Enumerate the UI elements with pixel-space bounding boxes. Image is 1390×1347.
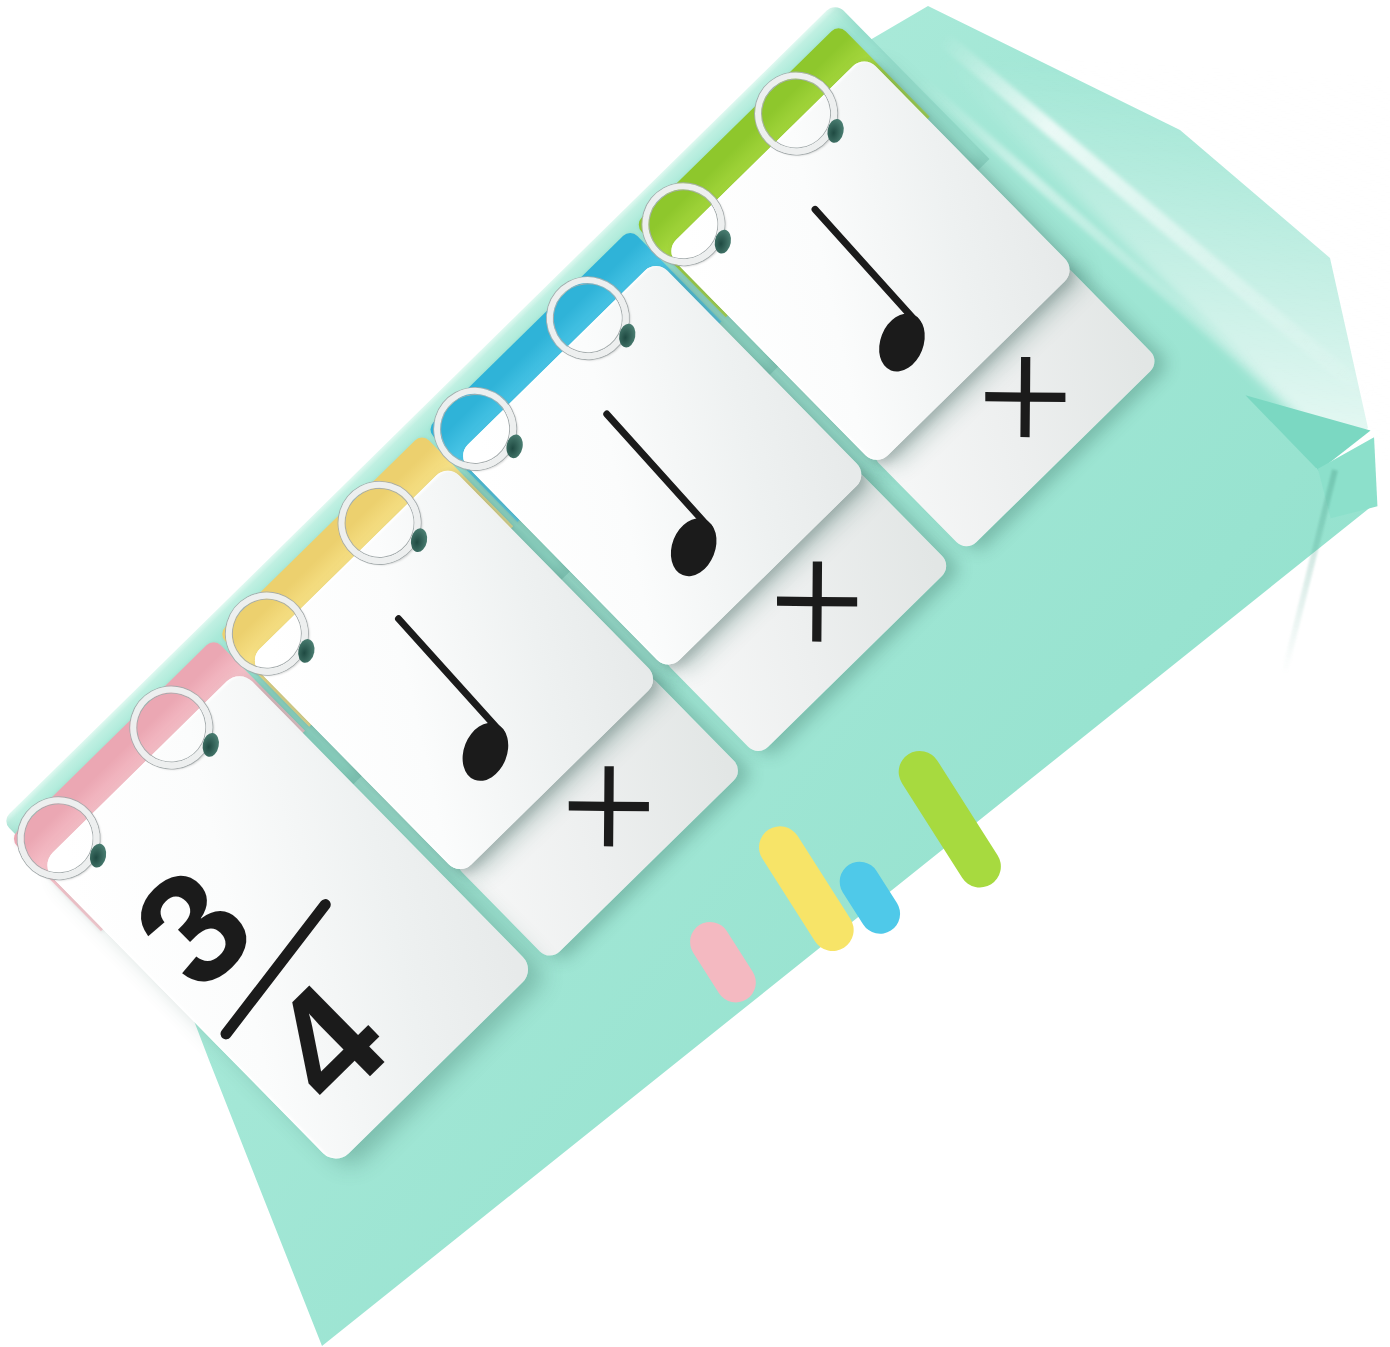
quarter-note-icon <box>394 614 506 738</box>
quarter-note-icon <box>454 716 516 788</box>
product-photo-scene: × × × 3 4 <box>0 0 1390 1347</box>
quarter-note-icon <box>602 409 714 533</box>
quarter-note-icon <box>663 511 725 583</box>
quarter-note-icon <box>810 204 922 328</box>
quarter-note-icon <box>871 307 933 379</box>
